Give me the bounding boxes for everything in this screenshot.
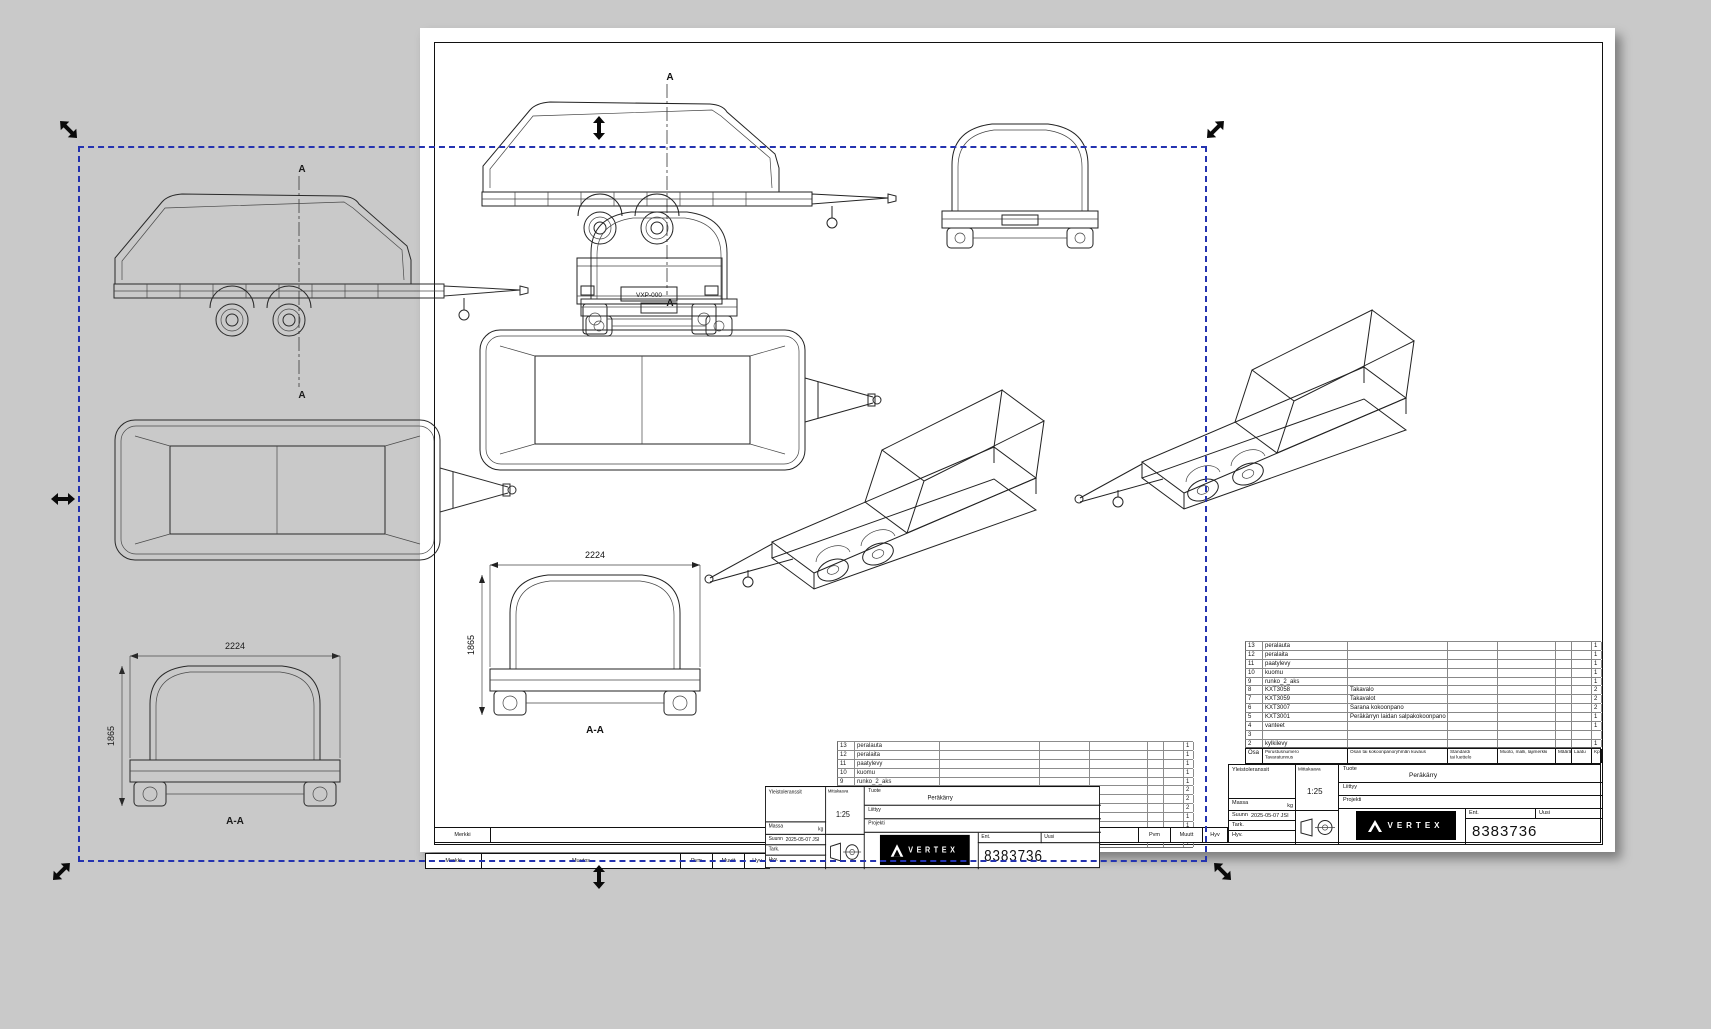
parts-list-original: 13peralauta112peralaita111paatylevy110ku… [1245,641,1601,764]
parts-row: 12peralaita1 [1245,650,1601,659]
parts-row: 9runko_2_aks1 [1245,677,1601,686]
product-label: Tuote [1343,766,1357,772]
project-label: Projekti [1343,797,1361,803]
approved-label: Hyv. [1232,832,1243,838]
title-block-original: Yleistoleranssit Massa kg Suunn 2025-05-… [1228,764,1601,843]
vertex-triangle-icon [1368,820,1382,832]
parts-row: 3 [1245,730,1601,739]
resize-handle-bottom-right[interactable] [1201,857,1238,894]
previous-label: Ent. [1469,810,1479,816]
scale-label: Mittakaava [1298,767,1321,772]
designer-date: 2025-05-07 JSI [1251,813,1289,819]
designer-label: Suunn [1232,812,1248,818]
parts-row: 6KXT3007Sarana kokoonpano2 [1245,703,1601,712]
mass-unit: kg [1287,803,1293,809]
parts-row: 11paatylevy1 [1245,659,1601,668]
parts-list-header: Osa PiirustusnumeroTavaratunnus Osan tai… [1245,748,1601,764]
parts-row: 10kuomu1 [1245,668,1601,677]
new-label: Uusi [1539,810,1550,816]
parts-row: 5KXT3001Peräkärryn laidan salpakokoonpan… [1245,712,1601,721]
checked-label: Tark. [1232,822,1244,828]
parts-row: 8KXT3058Takavalo2 [1245,685,1601,694]
mass-label: Massa [1232,800,1248,806]
general-tolerances-label: Yleistoleranssit [1232,767,1269,773]
resize-handle-bottom-left[interactable] [47,857,84,894]
drawing-number: 8383736 [1472,823,1537,840]
parts-row: 2kylkilevy1 [1245,739,1601,748]
related-label: Liittyy [1343,784,1357,790]
resize-handle-left-middle[interactable] [50,491,76,517]
selection-rectangle[interactable] [78,146,1207,862]
resize-handle-top-middle[interactable] [581,115,607,141]
projection-symbol-icon [1299,817,1337,839]
resize-handle-bottom-middle[interactable] [581,864,607,890]
parts-row: 13peralauta1 [1245,641,1601,650]
scale-value: 1:25 [1307,787,1323,796]
vertex-logo: VERTEX [1356,811,1456,840]
parts-row: 4vanteet1 [1245,721,1601,730]
parts-row: 7KXT3059Takavalot2 [1245,694,1601,703]
product-value: Peräkärry [1409,772,1437,779]
cad-workspace: A A [0,0,1711,1029]
